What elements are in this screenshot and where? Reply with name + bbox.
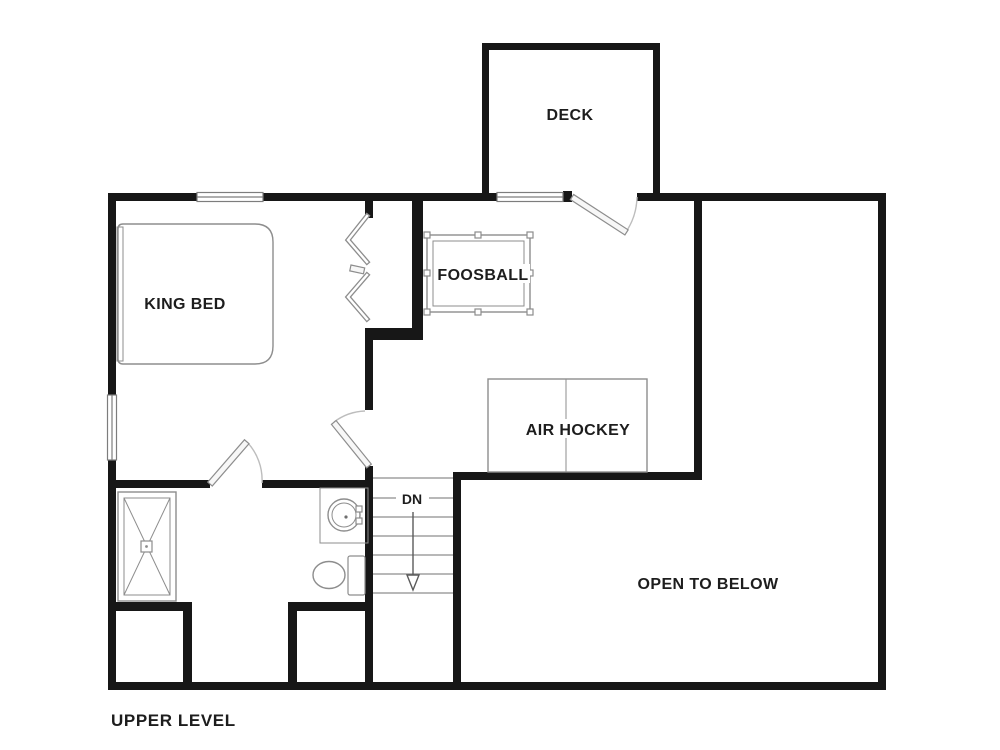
air-hockey-label-group: AIR HOCKEY: [519, 419, 637, 439]
toilet: [313, 556, 365, 595]
deck-label: DECK: [547, 107, 594, 124]
open-to-below-label: OPEN TO BELOW: [638, 576, 779, 593]
page-title: UPPER LEVEL: [111, 711, 236, 730]
closet-bifold-doors: [348, 216, 367, 319]
window-bedroom-north: [197, 193, 263, 202]
down-arrow-icon: [407, 512, 419, 590]
shower: [118, 492, 176, 601]
door-bedroom: [331, 411, 371, 468]
stairs-down-label: DN: [402, 491, 422, 507]
sink-vanity: [320, 488, 368, 543]
window-bedroom-west: [108, 395, 117, 460]
air-hockey-label: AIR HOCKEY: [526, 422, 630, 439]
foosball-label-group: FOOSBALL: [437, 264, 530, 284]
stairs: DN: [373, 478, 453, 593]
floor-plan-page: DN DEC: [0, 0, 1000, 750]
sliding-door-deck: [497, 193, 563, 202]
foosball-label: FOOSBALL: [437, 267, 528, 284]
door-bathroom: [208, 440, 262, 486]
king-bed: [117, 224, 273, 364]
interior-walls: [108, 196, 702, 690]
door-deck: [570, 194, 637, 234]
king-bed-label: KING BED: [144, 296, 225, 313]
floor-plan-drawing: DN DEC: [0, 0, 1000, 750]
